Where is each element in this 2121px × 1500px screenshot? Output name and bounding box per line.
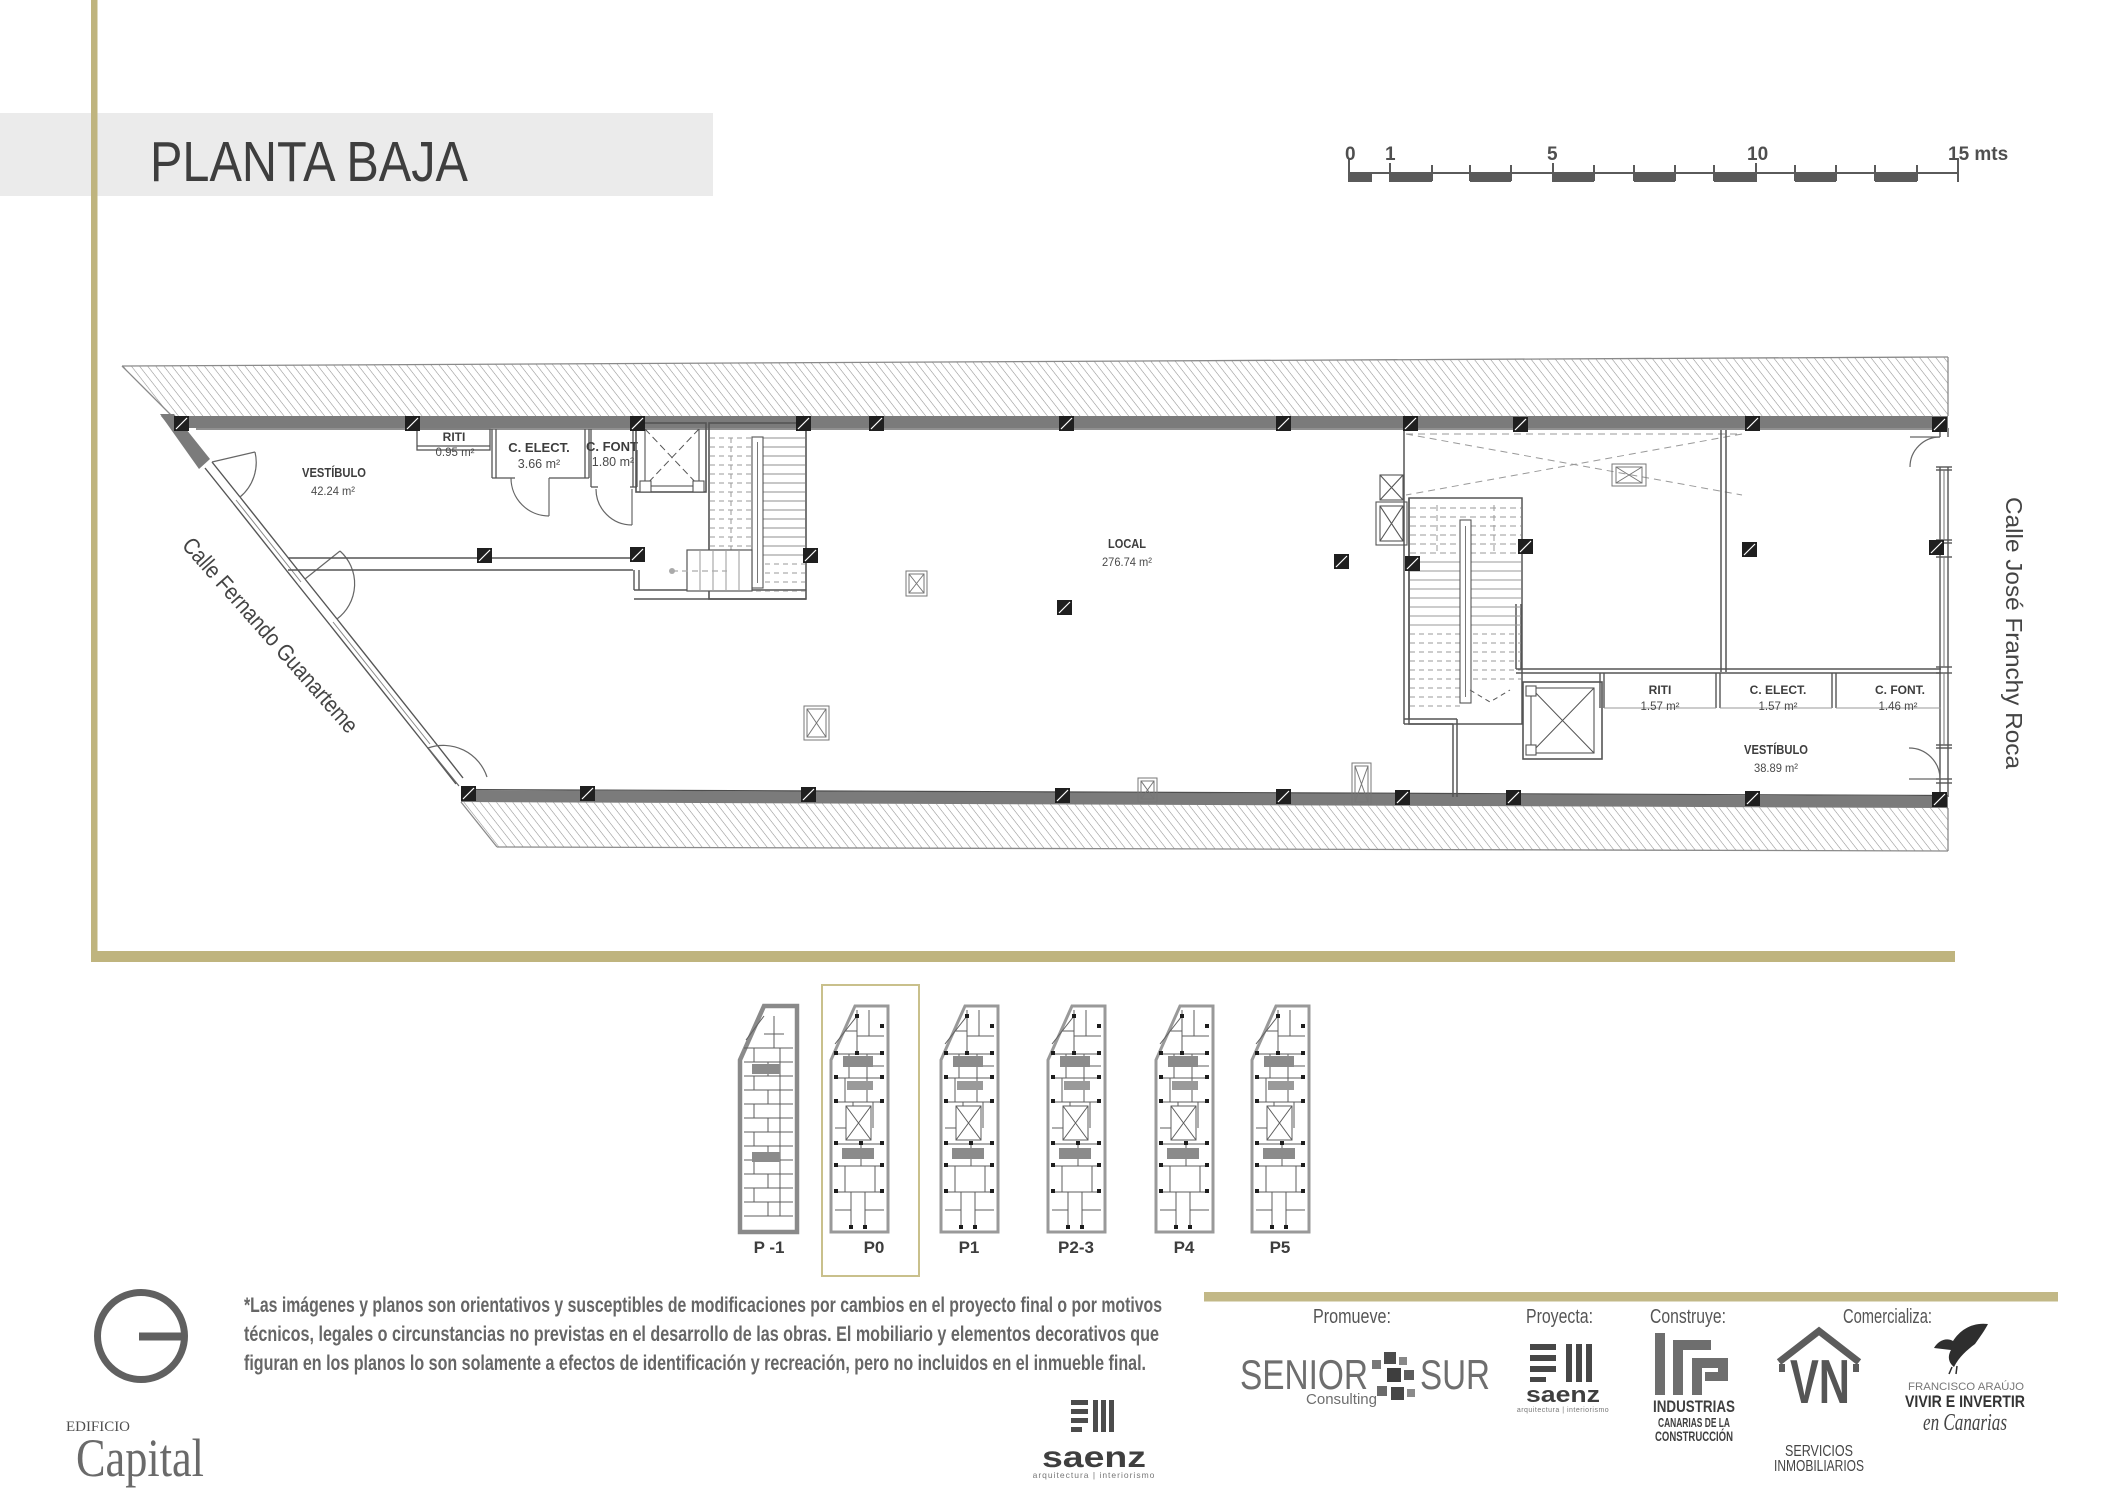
- svg-text:38.89 m²: 38.89 m²: [1754, 761, 1798, 775]
- svg-text:CANARIAS DE LA: CANARIAS DE LA: [1658, 1416, 1730, 1430]
- svg-text:15 mts: 15 mts: [1948, 144, 2008, 165]
- svg-text:Consulting: Consulting: [1306, 1391, 1377, 1408]
- svg-text:1: 1: [1385, 144, 1396, 165]
- svg-text:276.74 m²: 276.74 m²: [1102, 555, 1152, 569]
- svg-text:10: 10: [1747, 144, 1768, 165]
- svg-text:*Las imágenes y planos son ori: *Las imágenes y planos son orientativos …: [244, 1294, 1162, 1317]
- svg-text:Calle José Franchy Roca: Calle José Franchy Roca: [2001, 497, 2027, 769]
- svg-text:técnicos, legales o circunstan: técnicos, legales o circunstancias no pr…: [244, 1323, 1159, 1346]
- svg-text:RITI: RITI: [1649, 683, 1672, 697]
- svg-text:1.57 m²: 1.57 m²: [1759, 701, 1798, 713]
- svg-text:P4: P4: [1174, 1238, 1195, 1257]
- svg-text:figuran en los planos lo son s: figuran en los planos lo son solamente a…: [244, 1352, 1146, 1375]
- svg-text:P0: P0: [864, 1238, 885, 1257]
- svg-text:42.24 m²: 42.24 m²: [311, 484, 355, 498]
- svg-text:VN: VN: [1790, 1348, 1850, 1417]
- svg-text:3.66 m²: 3.66 m²: [518, 457, 560, 471]
- svg-text:P -1: P -1: [754, 1238, 785, 1257]
- svg-text:Comercializa:: Comercializa:: [1843, 1306, 1932, 1328]
- svg-text:Construye:: Construye:: [1650, 1306, 1726, 1328]
- svg-text:C. ELECT.: C. ELECT.: [508, 440, 569, 455]
- svg-text:5: 5: [1547, 144, 1558, 165]
- svg-text:P1: P1: [959, 1238, 980, 1257]
- svg-text:1.46 m²: 1.46 m²: [1879, 701, 1918, 713]
- svg-text:PLANTA BAJA: PLANTA BAJA: [150, 130, 468, 194]
- svg-text:C. FONT: C. FONT: [586, 439, 638, 454]
- svg-text:P5: P5: [1270, 1238, 1291, 1257]
- svg-text:VESTÍBULO: VESTÍBULO: [1744, 742, 1808, 757]
- svg-text:INDUSTRIAS: INDUSTRIAS: [1653, 1397, 1735, 1416]
- svg-text:Capital: Capital: [76, 1428, 204, 1488]
- svg-text:SUR: SUR: [1420, 1351, 1490, 1398]
- svg-text:Promueve:: Promueve:: [1313, 1306, 1391, 1328]
- svg-text:P2-3: P2-3: [1058, 1238, 1094, 1257]
- svg-text:arquitectura | interiorismo: arquitectura | interiorismo: [1517, 1407, 1609, 1414]
- svg-text:0.95 m²: 0.95 m²: [436, 447, 475, 459]
- svg-text:RITI: RITI: [443, 430, 466, 444]
- svg-text:1.80 m²: 1.80 m²: [592, 455, 634, 469]
- svg-text:en Canarias: en Canarias: [1923, 1410, 2007, 1436]
- svg-text:Proyecta:: Proyecta:: [1526, 1306, 1593, 1328]
- svg-text:VESTÍBULO: VESTÍBULO: [302, 465, 366, 480]
- svg-text:LOCAL: LOCAL: [1108, 537, 1146, 551]
- svg-text:0: 0: [1345, 144, 1356, 165]
- svg-text:VIVIR E INVERTIR: VIVIR E INVERTIR: [1905, 1392, 2025, 1411]
- svg-text:C. ELECT.: C. ELECT.: [1750, 683, 1807, 697]
- svg-text:INMOBILIARIOS: INMOBILIARIOS: [1774, 1458, 1864, 1475]
- svg-text:arquitectura | interiorismo: arquitectura | interiorismo: [1033, 1470, 1156, 1480]
- svg-text:1.57 m²: 1.57 m²: [1641, 701, 1680, 713]
- svg-text:CONSTRUCCIÓN: CONSTRUCCIÓN: [1655, 1429, 1733, 1444]
- svg-text:saenz: saenz: [1526, 1382, 1600, 1407]
- svg-text:C. FONT.: C. FONT.: [1875, 683, 1925, 697]
